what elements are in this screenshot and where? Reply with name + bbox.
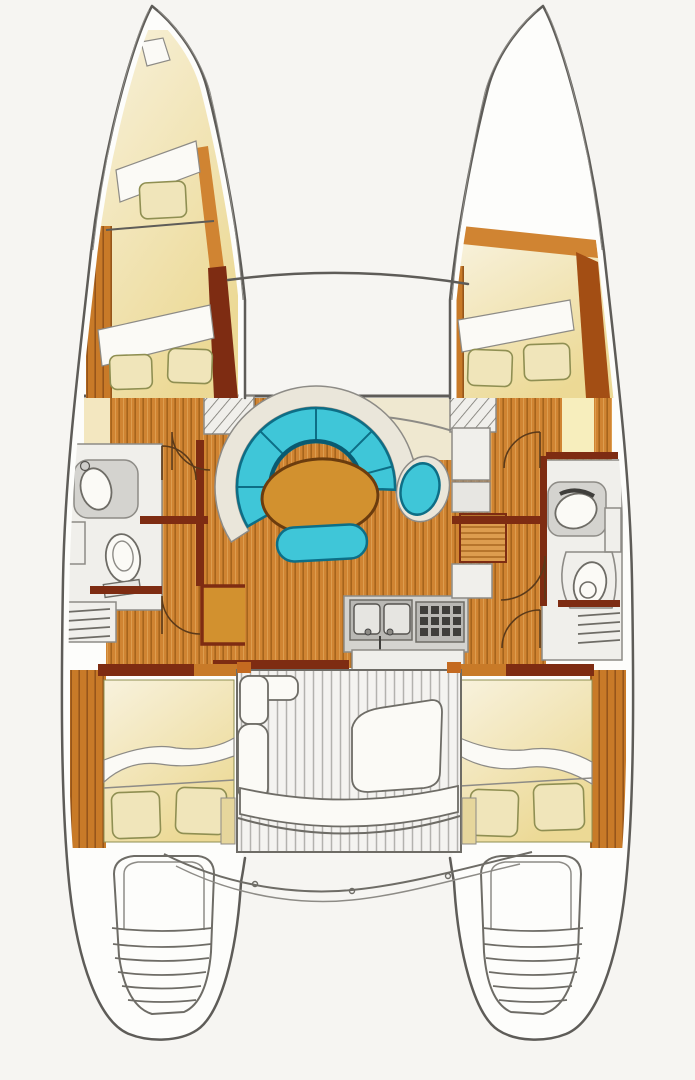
- stbd-salon-wall: [540, 456, 547, 606]
- cockpit-table-leaf: [240, 676, 268, 724]
- stbd-vberth-pillow-right: [523, 343, 570, 381]
- starboard-head: [542, 460, 622, 660]
- port-aft-wood-strip: [70, 670, 106, 848]
- port-aft-bulkhead: [98, 664, 194, 676]
- port-side-deck-cushion: [221, 798, 235, 844]
- stbd-head-shelf: [605, 508, 621, 552]
- cockpit: [221, 662, 476, 852]
- stbd-transom: [481, 856, 583, 1014]
- catamaran-floor-plan: [0, 0, 695, 1080]
- port-vberth-pillow-left: [109, 354, 152, 389]
- port-aft-doorway-bar: [194, 664, 238, 676]
- port-transom: [112, 856, 214, 1014]
- faucet-left: [365, 629, 371, 635]
- floor-plan-canvas: [0, 0, 695, 1080]
- stbd-cabinet-2: [452, 482, 490, 512]
- port-faucet: [81, 462, 90, 471]
- port-transom-platform: [114, 856, 214, 1014]
- cockpit-post-left: [237, 662, 251, 673]
- stbd-head-fwd-wall: [546, 452, 618, 459]
- port-bow-pillow: [139, 181, 187, 219]
- starboard-aft-cabin: [460, 664, 626, 848]
- stbd-aft-bulkhead: [506, 664, 594, 676]
- cockpit-seat-right: [352, 700, 442, 792]
- stbd-aft-wood-strip: [590, 670, 626, 848]
- port-vberth-pillow-right: [167, 348, 212, 384]
- port-head-aft-wall: [90, 586, 162, 594]
- galley: [344, 596, 468, 670]
- stbd-aft-doorway-bar: [460, 664, 506, 676]
- stbd-vberth-pillow-left: [467, 349, 512, 387]
- salon: [84, 386, 614, 670]
- faucet-right: [387, 629, 393, 635]
- stbd-aft-pillow-right: [533, 783, 585, 831]
- stbd-cabinet-3: [452, 564, 492, 598]
- stbd-mid-wall: [452, 516, 542, 524]
- port-aft-cabin: [70, 664, 238, 848]
- port-salon-wall: [196, 440, 204, 586]
- stbd-head-aft-wall: [558, 600, 620, 607]
- stbd-transom-platform: [481, 856, 581, 1014]
- port-aft-pillow-left: [111, 791, 161, 839]
- port-locker-top: [84, 398, 110, 446]
- stbd-aft-pillow-left: [469, 789, 519, 837]
- port-head-wall: [140, 516, 208, 524]
- stbd-wardrobe-top: [562, 398, 594, 456]
- stbd-cabinet-1: [452, 428, 490, 480]
- port-aft-pillow-right: [175, 787, 227, 835]
- stbd-side-deck-cushion: [462, 798, 476, 844]
- cockpit-post-right: [447, 662, 461, 673]
- settee-bench: [276, 524, 368, 563]
